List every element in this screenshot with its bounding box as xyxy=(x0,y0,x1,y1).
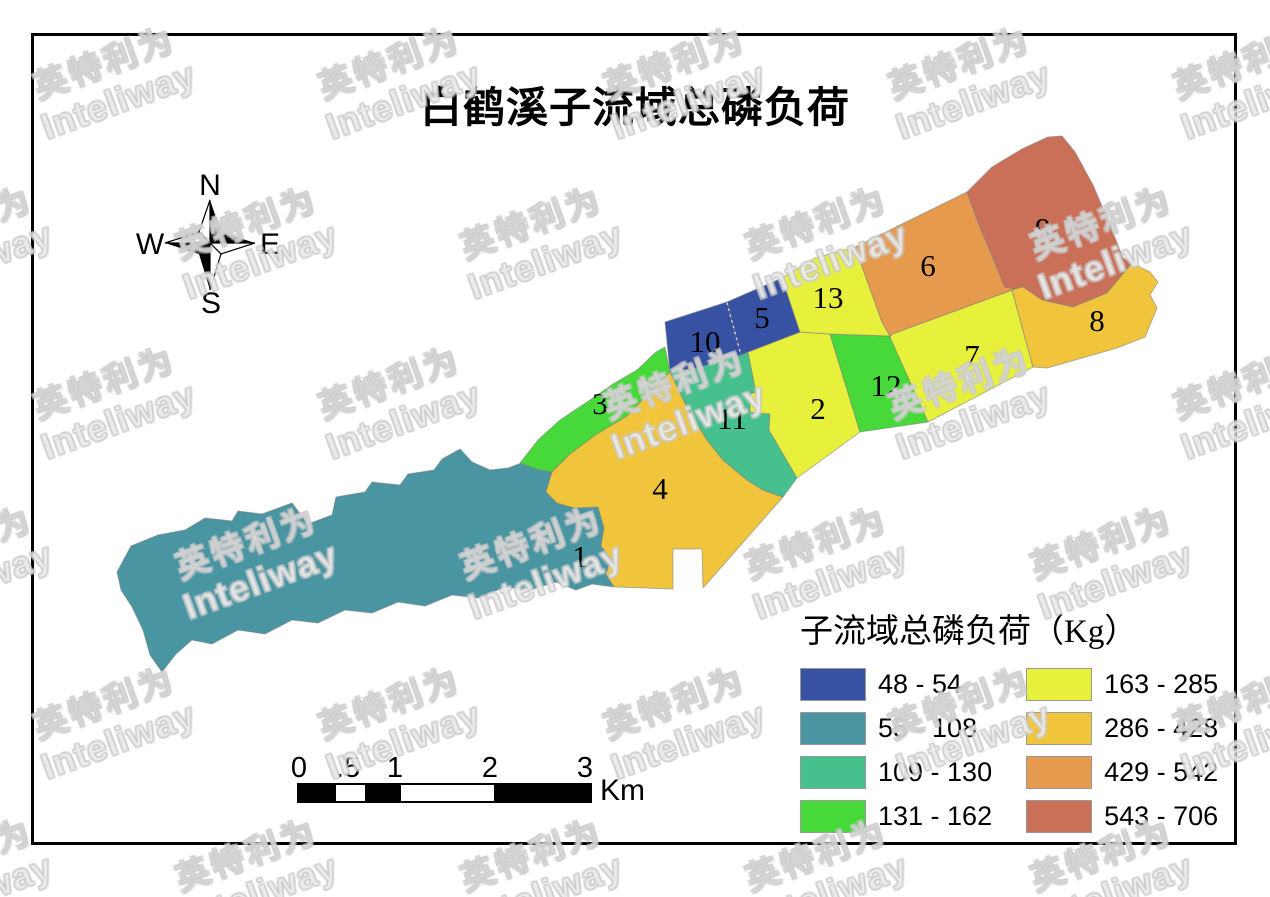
legend-swatch xyxy=(1026,756,1092,789)
compass-label-east: E xyxy=(260,228,280,261)
legend-swatch xyxy=(800,756,866,789)
scale-bar: 0 .5 1 2 3 Km xyxy=(297,752,657,812)
region-label-1: 1 xyxy=(572,539,588,574)
legend-item: 286 - 428 xyxy=(1026,712,1218,745)
region-label-2: 2 xyxy=(810,391,826,426)
region-label-11: 11 xyxy=(717,401,747,436)
legend-range-label: 543 - 706 xyxy=(1104,801,1218,832)
region-label-7: 7 xyxy=(964,338,980,373)
legend-range-label: 163 - 285 xyxy=(1104,669,1218,700)
legend-range-label: 131 - 162 xyxy=(878,801,992,832)
legend-item: 163 - 285 xyxy=(1026,668,1218,701)
region-label-4: 4 xyxy=(652,471,668,506)
region-label-12: 12 xyxy=(871,368,902,403)
legend-column-right: 163 - 285 286 - 428 429 - 542 543 - 706 xyxy=(1026,668,1218,833)
region-label-6: 6 xyxy=(920,248,936,283)
region-1 xyxy=(117,449,614,672)
compass-label-west: W xyxy=(136,228,165,261)
legend-item: 429 - 542 xyxy=(1026,756,1218,789)
scale-tick-label: .5 xyxy=(336,752,360,785)
scale-tick-label: 3 xyxy=(577,752,593,785)
compass-rose-icon xyxy=(165,200,255,290)
legend-range-label: 109 - 130 xyxy=(878,757,992,788)
region-label-10: 10 xyxy=(690,324,721,359)
region-label-3: 3 xyxy=(592,386,608,421)
legend-range-label: 55 - 108 xyxy=(878,713,977,744)
legend-swatch xyxy=(800,712,866,745)
legend-swatch xyxy=(1026,668,1092,701)
scale-bar-segments xyxy=(297,783,592,803)
region-label-5: 5 xyxy=(754,300,770,335)
legend: 子流域总磷负荷（Kg） 48 - 54 55 - 108 109 - 130 1… xyxy=(800,604,1218,833)
map-title: 白鹤溪子流域总磷负荷 xyxy=(0,74,1270,135)
region-label-9: 9 xyxy=(1035,211,1051,246)
legend-swatch xyxy=(800,668,866,701)
legend-item: 543 - 706 xyxy=(1026,800,1218,833)
legend-swatch xyxy=(800,800,866,833)
legend-range-label: 48 - 54 xyxy=(878,669,962,700)
legend-item: 131 - 162 xyxy=(800,800,992,833)
region-label-13: 13 xyxy=(813,280,844,315)
compass-label-south: S xyxy=(201,287,221,320)
scale-unit-label: Km xyxy=(600,774,645,808)
region-label-8: 8 xyxy=(1089,303,1105,338)
legend-range-label: 429 - 542 xyxy=(1104,757,1218,788)
legend-title: 子流域总磷负荷（Kg） xyxy=(800,604,1218,652)
legend-swatch xyxy=(1026,712,1092,745)
legend-item: 55 - 108 xyxy=(800,712,992,745)
scale-tick-label: 2 xyxy=(482,752,498,785)
scale-tick-label: 0 xyxy=(291,752,307,785)
legend-column-left: 48 - 54 55 - 108 109 - 130 131 - 162 xyxy=(800,668,992,833)
legend-swatch xyxy=(1026,800,1092,833)
legend-range-label: 286 - 428 xyxy=(1104,713,1218,744)
legend-item: 48 - 54 xyxy=(800,668,992,701)
legend-item: 109 - 130 xyxy=(800,756,992,789)
compass-label-north: N xyxy=(199,169,221,202)
scale-tick-label: 1 xyxy=(387,752,403,785)
